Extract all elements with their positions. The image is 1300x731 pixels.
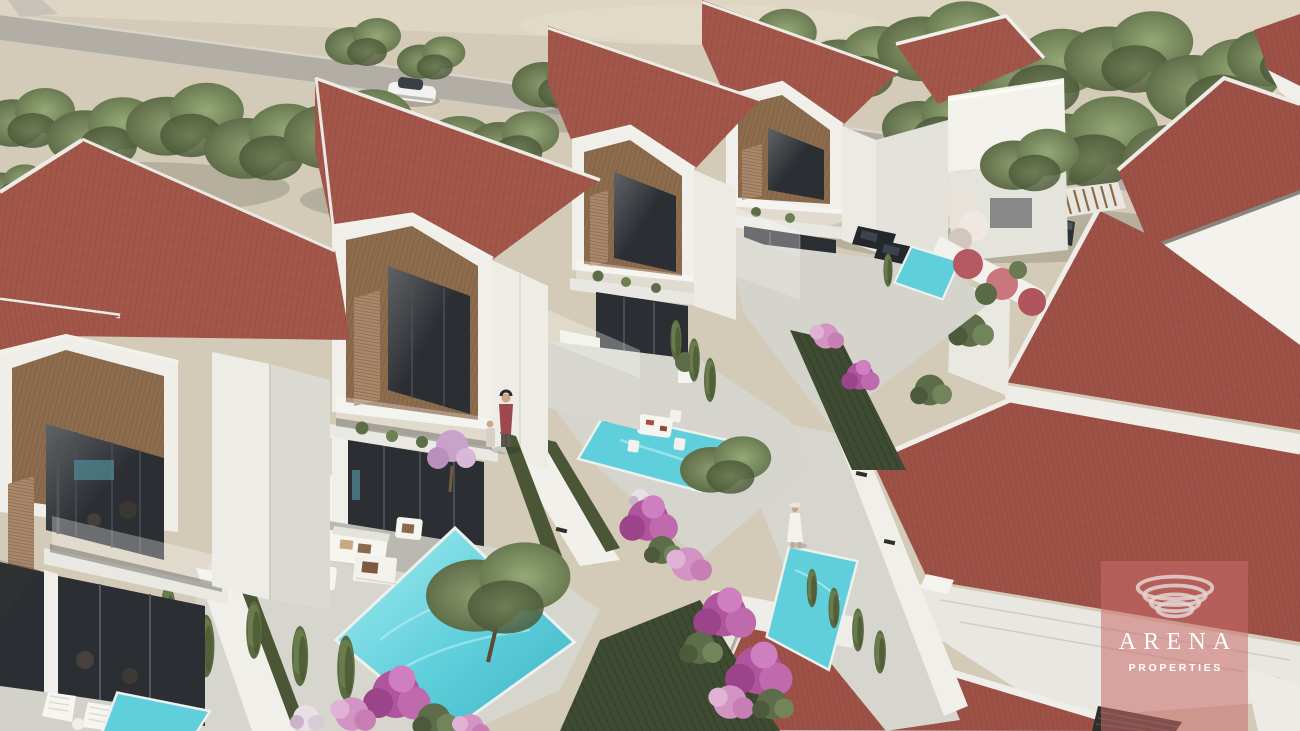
render-image: Aerial 3D architectural rendering of a r… (0, 0, 1300, 731)
watermark-subtitle: PROPERTIES (1126, 662, 1223, 674)
watermark-brand: ARENA (1112, 629, 1238, 656)
watermark: ARENA PROPERTIES (1101, 561, 1248, 731)
arena-rings-icon (1127, 571, 1223, 627)
